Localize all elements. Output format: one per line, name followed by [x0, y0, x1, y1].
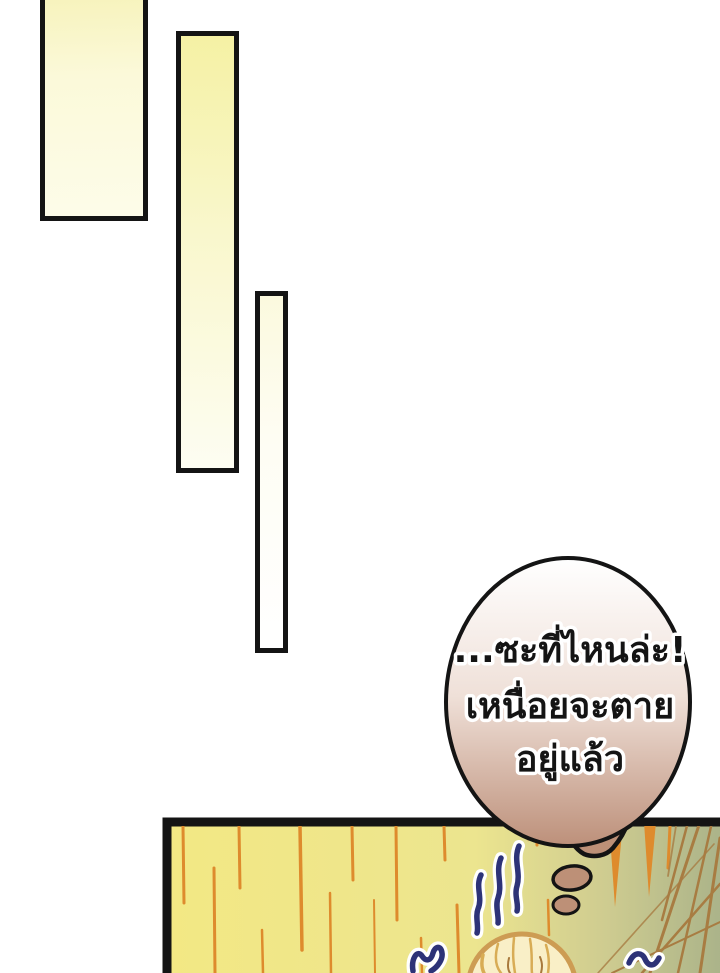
bubble-line-1: ...ซะที่ไหนล่ะ! [454, 624, 687, 671]
comic-page: ...ซะที่ไหนล่ะ! เหนื่อยจะตาย อยู่แล้ว [0, 0, 720, 973]
thought-dot-small [553, 896, 579, 914]
steam-line-3 [516, 846, 519, 911]
bubble-line-3: อยู่แล้ว [516, 739, 624, 782]
bubble-line-2: เหนื่อยจะตาย [466, 680, 674, 727]
bottom-panel-scene: ...ซะที่ไหนล่ะ! เหนื่อยจะตาย อยู่แล้ว [0, 0, 720, 973]
